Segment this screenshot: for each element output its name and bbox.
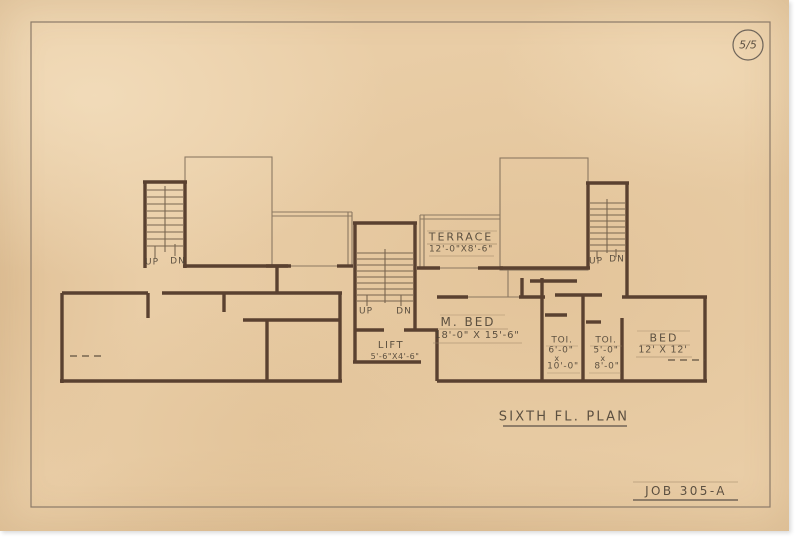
room-label-lift: LIFT: [378, 341, 404, 351]
pencil-room-outlines: [185, 157, 588, 297]
room-label-terrace: TERRACE: [429, 232, 493, 243]
stair-left-up-label: UP: [145, 259, 159, 268]
center-stair-treads: [357, 249, 413, 306]
room-dims-bed: 12' X 12': [638, 345, 687, 355]
right-stair-treads: [590, 199, 625, 259]
stair-center-up-label: UP: [359, 308, 373, 317]
room-dims-toi-1-b: 10'-0": [547, 363, 579, 372]
room-dims-toi-1-a: 6'-0": [548, 347, 573, 356]
drawing-title: SIXTH FL. PLAN: [499, 411, 629, 424]
blueprint-paper: 5/5 TERRACE 12'-0"X8'-6" M. BED 18'-0" X…: [0, 0, 789, 531]
stair-right-up-label: UP: [589, 258, 603, 267]
room-label-toi-1: TOI.: [551, 337, 572, 346]
stair-left-dn-label: DN: [170, 258, 186, 267]
sheet-number: 5/5: [739, 40, 757, 51]
room-label-bed: BED: [650, 333, 679, 344]
room-dims-terrace: 12'-0"X8'-6": [429, 246, 493, 255]
room-label-toi-2: TOI.: [595, 337, 616, 346]
room-label-m-bed: M. BED: [440, 316, 495, 328]
job-number: JOB 305-A: [645, 485, 727, 497]
left-stair-treads: [147, 186, 183, 258]
stair-right-dn-label: DN: [609, 256, 625, 265]
room-dims-lift: 5'-6"X4'-6": [371, 353, 420, 361]
room-dims-toi-2-b: 8'-0": [594, 363, 619, 372]
stair-center-dn-label: DN: [396, 308, 412, 317]
room-dims-m-bed: 18'-0" X 15'-6": [434, 331, 519, 341]
floor-plan-drawing: [0, 0, 800, 537]
room-dims-toi-2-a: 5'-0": [593, 347, 618, 356]
